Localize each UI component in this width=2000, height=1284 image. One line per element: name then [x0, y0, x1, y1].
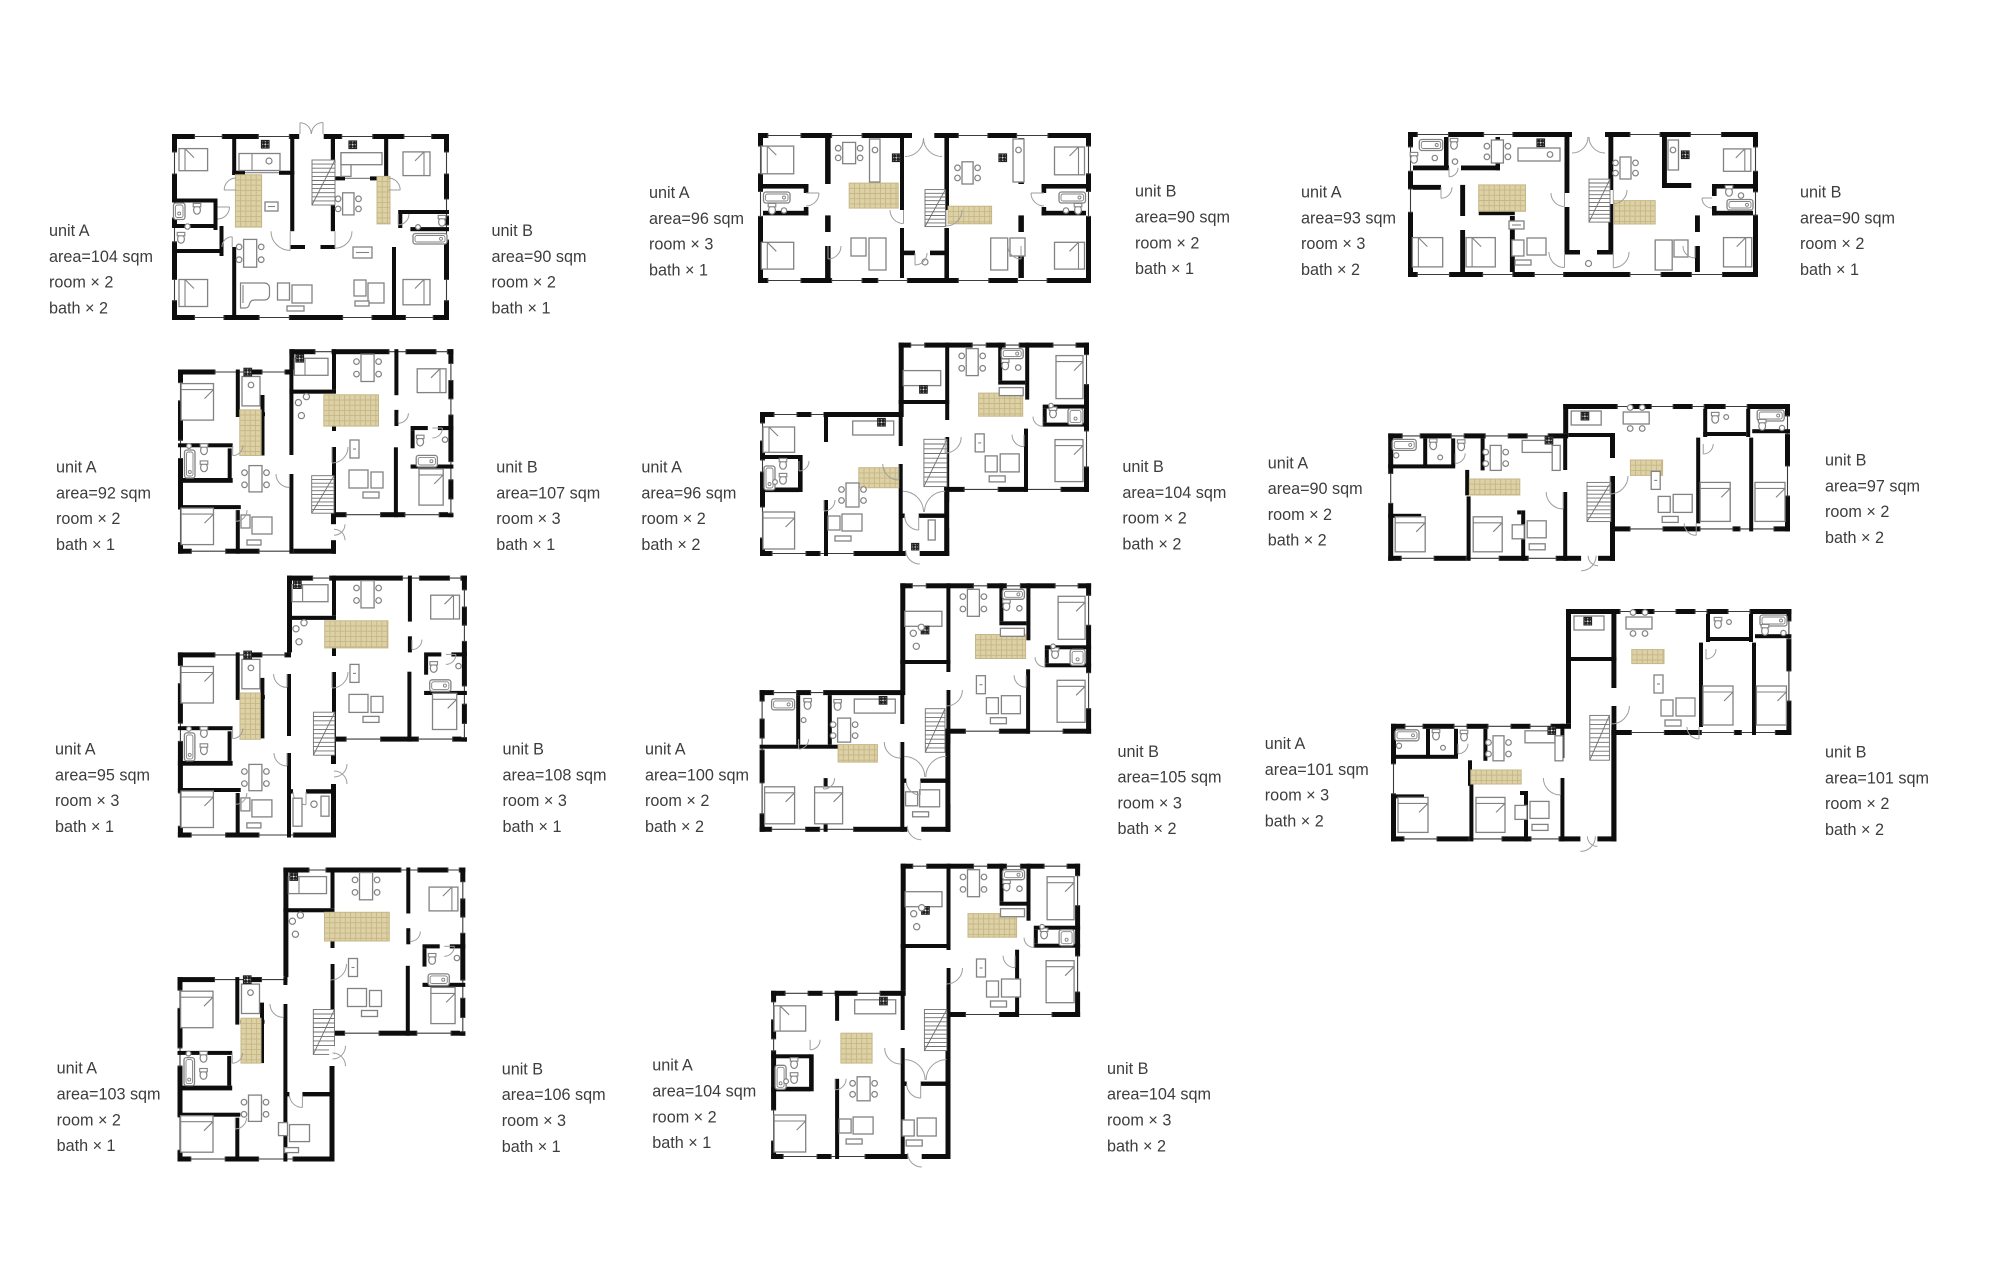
svg-text:bath × 1: bath × 1: [56, 536, 115, 554]
svg-text:area=96 sqm: area=96 sqm: [649, 210, 744, 228]
svg-text:area=104 sqm: area=104 sqm: [652, 1083, 756, 1101]
svg-text:area=101 sqm: area=101 sqm: [1265, 761, 1369, 779]
svg-text:room × 2: room × 2: [492, 274, 556, 292]
svg-text:unit A: unit A: [55, 741, 96, 759]
svg-text:bath × 2: bath × 2: [1825, 529, 1884, 547]
svg-text:bath × 1: bath × 1: [502, 1138, 561, 1156]
svg-text:area=105 sqm: area=105 sqm: [1118, 769, 1222, 787]
svg-text:room × 3: room × 3: [503, 792, 567, 810]
svg-text:room × 2: room × 2: [1800, 235, 1864, 253]
svg-text:bath × 1: bath × 1: [652, 1134, 711, 1152]
svg-text:bath × 1: bath × 1: [1800, 261, 1859, 279]
svg-text:unit A: unit A: [649, 184, 690, 202]
svg-text:room × 3: room × 3: [55, 792, 119, 810]
svg-text:unit B: unit B: [492, 222, 533, 240]
svg-text:room × 2: room × 2: [1825, 503, 1889, 521]
svg-text:room × 2: room × 2: [56, 510, 120, 528]
svg-text:area=90 sqm: area=90 sqm: [1268, 480, 1363, 498]
svg-text:bath × 1: bath × 1: [1135, 260, 1194, 278]
svg-text:room × 2: room × 2: [652, 1108, 716, 1126]
svg-text:bath × 2: bath × 2: [1301, 261, 1360, 279]
svg-text:bath × 1: bath × 1: [496, 536, 555, 554]
svg-text:unit B: unit B: [1122, 458, 1163, 476]
svg-text:unit A: unit A: [49, 222, 90, 240]
svg-text:bath × 2: bath × 2: [1107, 1137, 1166, 1155]
svg-text:unit B: unit B: [1825, 452, 1866, 470]
svg-text:area=104 sqm: area=104 sqm: [1122, 484, 1226, 502]
svg-text:area=93 sqm: area=93 sqm: [1301, 209, 1396, 227]
svg-text:unit B: unit B: [502, 1060, 543, 1078]
svg-text:bath × 1: bath × 1: [503, 818, 562, 836]
svg-text:bath × 1: bath × 1: [649, 262, 708, 280]
svg-text:unit A: unit A: [641, 459, 682, 477]
svg-text:area=108 sqm: area=108 sqm: [503, 766, 607, 784]
svg-text:bath × 2: bath × 2: [1122, 535, 1181, 553]
svg-text:room × 3: room × 3: [649, 236, 713, 254]
svg-text:area=101 sqm: area=101 sqm: [1825, 769, 1929, 787]
svg-text:unit A: unit A: [1268, 454, 1309, 472]
svg-text:area=107 sqm: area=107 sqm: [496, 484, 600, 502]
svg-text:room × 3: room × 3: [1265, 787, 1329, 805]
svg-text:unit B: unit B: [1825, 744, 1866, 762]
svg-text:room × 3: room × 3: [1301, 235, 1365, 253]
svg-text:unit B: unit B: [1135, 183, 1176, 201]
svg-text:room × 2: room × 2: [1122, 510, 1186, 528]
svg-text:bath × 1: bath × 1: [57, 1137, 116, 1155]
svg-text:area=90 sqm: area=90 sqm: [1135, 209, 1230, 227]
svg-text:area=90 sqm: area=90 sqm: [492, 248, 587, 266]
svg-text:bath × 2: bath × 2: [645, 818, 704, 836]
svg-text:room × 2: room × 2: [57, 1111, 121, 1129]
svg-text:unit B: unit B: [1107, 1060, 1148, 1078]
svg-text:bath × 2: bath × 2: [1265, 813, 1324, 831]
svg-text:room × 3: room × 3: [1118, 794, 1182, 812]
svg-text:unit B: unit B: [503, 741, 544, 759]
svg-text:bath × 2: bath × 2: [49, 299, 108, 317]
svg-text:unit B: unit B: [1118, 743, 1159, 761]
svg-text:area=90 sqm: area=90 sqm: [1800, 209, 1895, 227]
svg-text:room × 2: room × 2: [1135, 234, 1199, 252]
svg-text:area=106 sqm: area=106 sqm: [502, 1086, 606, 1104]
svg-text:unit B: unit B: [496, 459, 537, 477]
svg-text:room × 2: room × 2: [49, 274, 113, 292]
svg-text:bath × 2: bath × 2: [1825, 821, 1884, 839]
svg-text:bath × 1: bath × 1: [55, 818, 114, 836]
svg-text:unit A: unit A: [645, 741, 686, 759]
svg-text:area=92 sqm: area=92 sqm: [56, 484, 151, 502]
svg-text:area=95 sqm: area=95 sqm: [55, 766, 150, 784]
svg-text:area=103 sqm: area=103 sqm: [57, 1086, 161, 1104]
svg-text:area=104 sqm: area=104 sqm: [49, 248, 153, 266]
svg-text:unit A: unit A: [1301, 184, 1342, 202]
svg-text:unit A: unit A: [56, 459, 97, 477]
svg-text:room × 3: room × 3: [496, 510, 560, 528]
svg-text:room × 3: room × 3: [1107, 1112, 1171, 1130]
svg-text:room × 2: room × 2: [1825, 795, 1889, 813]
svg-text:room × 2: room × 2: [1268, 506, 1332, 524]
svg-text:bath × 2: bath × 2: [641, 536, 700, 554]
svg-text:bath × 1: bath × 1: [492, 299, 551, 317]
svg-text:area=96 sqm: area=96 sqm: [641, 484, 736, 502]
svg-text:area=100 sqm: area=100 sqm: [645, 766, 749, 784]
svg-text:unit A: unit A: [57, 1060, 98, 1078]
svg-text:unit A: unit A: [652, 1057, 693, 1075]
svg-text:area=97 sqm: area=97 sqm: [1825, 477, 1920, 495]
svg-text:room × 2: room × 2: [641, 510, 705, 528]
svg-text:unit B: unit B: [1800, 184, 1841, 202]
svg-text:bath × 2: bath × 2: [1268, 532, 1327, 550]
svg-text:bath × 2: bath × 2: [1118, 820, 1177, 838]
svg-text:area=104 sqm: area=104 sqm: [1107, 1086, 1211, 1104]
svg-text:unit A: unit A: [1265, 735, 1306, 753]
svg-text:room × 3: room × 3: [502, 1112, 566, 1130]
svg-text:room × 2: room × 2: [645, 792, 709, 810]
